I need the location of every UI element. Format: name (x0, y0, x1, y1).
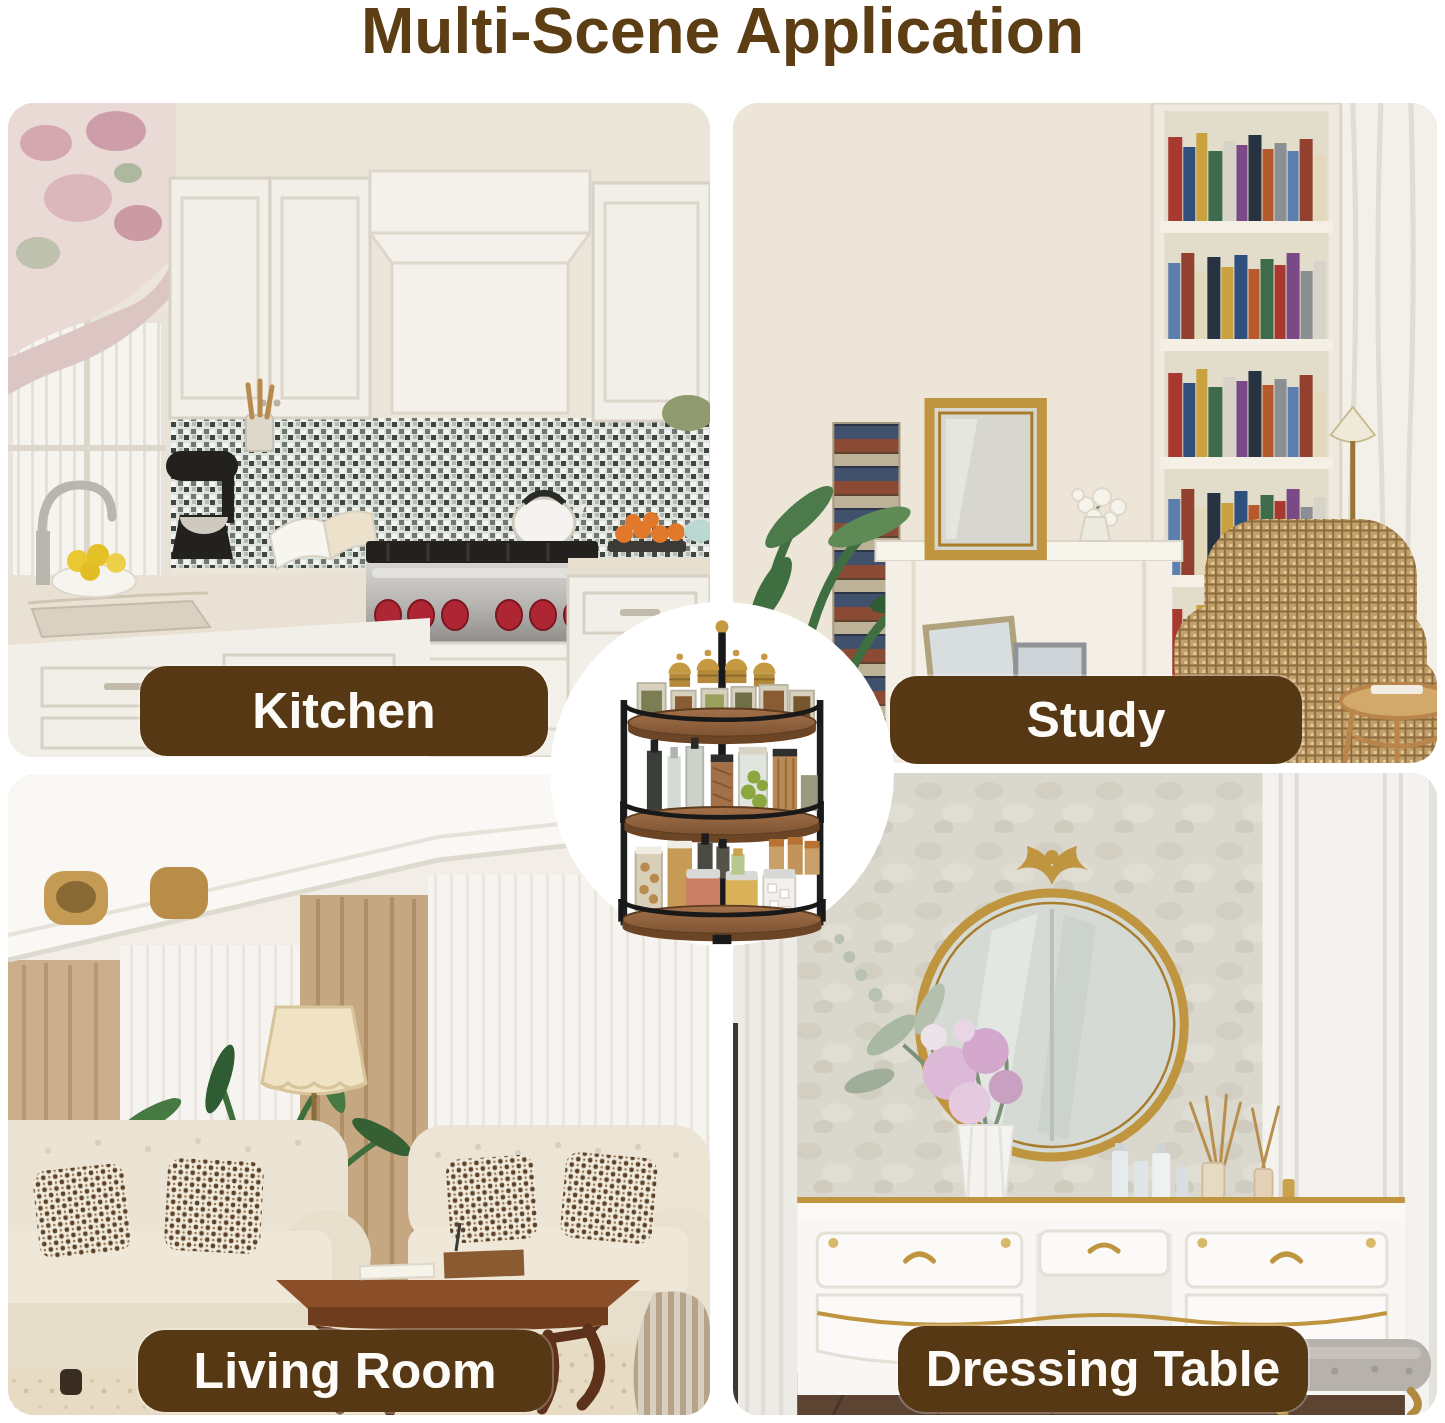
study-scene-label: Study (890, 676, 1302, 764)
product-infographic: Multi-Scene Application (0, 0, 1445, 1423)
page-title: Multi-Scene Application (0, 0, 1445, 68)
living-room-scene-label: Living Room (138, 1330, 552, 1412)
spice-rack-image (574, 608, 870, 946)
kitchen-scene-label: Kitchen (140, 666, 548, 756)
dressing-table-scene-label: Dressing Table (898, 1326, 1308, 1412)
product-circle (550, 602, 894, 946)
